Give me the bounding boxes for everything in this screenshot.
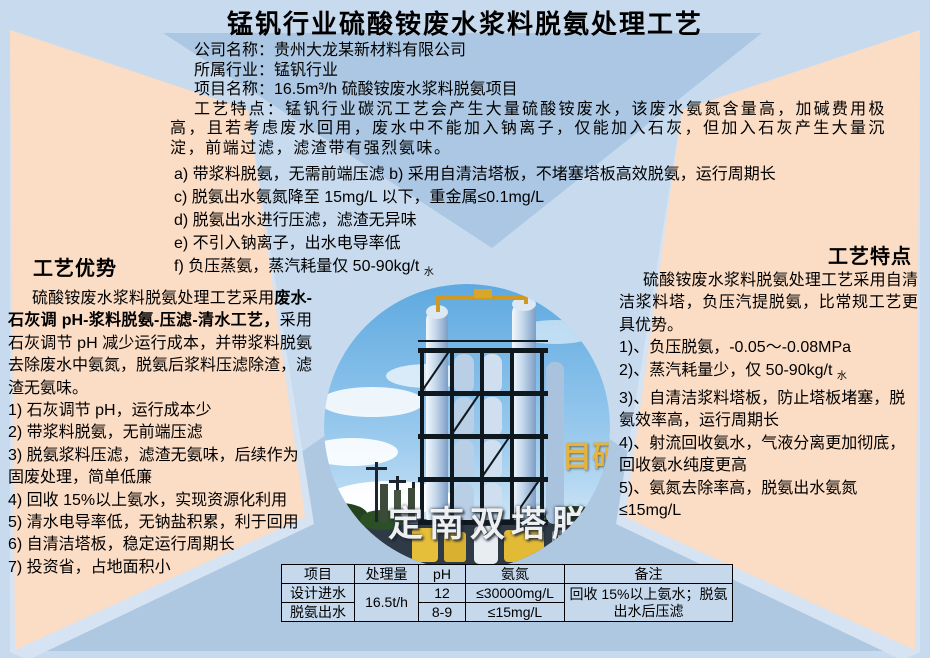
feature-line-e: e) 不引入钠离子，出水电导率低 xyxy=(174,232,886,255)
characteristic-item: 1)、负压脱氨，-0.05～-0.08MPa xyxy=(619,337,918,359)
photo-caption: 定南双塔脱氨 xyxy=(388,496,610,547)
company-name-line: 公司名称：贵州大龙某新材料有限公司 xyxy=(170,41,886,61)
cell-note: 回收 15%以上氨水；脱氨出水后压滤 xyxy=(565,584,733,622)
plant-photo: 定南双塔脱氨 目硕 xyxy=(324,284,610,570)
left-panel-heading: 工艺优势 xyxy=(33,252,117,281)
advantage-item: 6) 自清洁塔板，稳定运行周期长 xyxy=(8,534,312,556)
slide: 锰钒行业硫酸铵废水浆料脱氨处理工艺 公司名称：贵州大龙某新材料有限公司 所属行业… xyxy=(0,0,930,658)
project-info-block: 公司名称：贵州大龙某新材料有限公司 所属行业：锰钒行业 项目名称：16.5m³/… xyxy=(170,41,886,284)
cell-ph: 8-9 xyxy=(419,603,466,622)
right-panel-paragraph: 硫酸铵废水浆料脱氨处理工艺采用自清洁浆料塔，负压汽提脱氨，比常规工艺更具优势。 xyxy=(619,270,918,337)
feature-line-f-subscript: 水 xyxy=(424,267,434,278)
col-header-ph: pH xyxy=(419,565,466,584)
feature-line-f-text: f) 负压蒸氨，蒸汽耗量仅 50-90kg/t xyxy=(174,258,419,275)
spec-table: 项目 处理量 pH 氨氮 备注 设计进水 16.5t/h 12 ≤30000mg… xyxy=(281,564,733,622)
table-row: 设计进水 16.5t/h 12 ≤30000mg/L 回收 15%以上氨水；脱氨… xyxy=(282,584,733,603)
advantage-item: 4) 回收 15%以上氨水，实现资源化利用 xyxy=(8,490,312,512)
advantage-item: 7) 投资省，占地面积小 xyxy=(8,557,312,579)
advantage-item: 1) 石灰调节 pH，运行成本少 xyxy=(8,400,312,422)
left-para-pre: 硫酸铵废水浆料脱氨处理工艺采用 xyxy=(32,290,274,307)
characteristic-item: 4)、射流回收氨水，气液分离更加彻底，回收氨水纯度更高 xyxy=(619,433,918,478)
feature-list: a) 带浆料脱氨，无需前端压滤 b) 采用自清洁塔板，不堵塞塔板高效脱氨，运行周… xyxy=(170,163,886,284)
cell-ammonia: ≤30000mg/L xyxy=(466,584,565,603)
right-panel: 硫酸铵废水浆料脱氨处理工艺采用自清洁浆料塔，负压汽提脱氨，比常规工艺更具优势。 … xyxy=(619,270,918,522)
process-description: 工艺特点：锰钒行业碳沉工艺会产生大量硫酸铵废水，该废水氨氮含量高，加碱费用极高，… xyxy=(170,100,886,159)
col-header-note: 备注 xyxy=(565,565,733,584)
col-header-item: 项目 xyxy=(282,565,355,584)
advantage-item: 2) 带浆料脱氨，无前端压滤 xyxy=(8,422,312,444)
cell-ammonia: ≤15mg/L xyxy=(466,603,565,622)
right-panel-heading: 工艺特点 xyxy=(828,240,912,269)
slide-title: 锰钒行业硫酸铵废水浆料脱氨处理工艺 xyxy=(0,4,930,41)
industry-line: 所属行业：锰钒行业 xyxy=(170,61,886,81)
characteristic-item-2-text: 2)、蒸汽耗量少，仅 50-90kg/t xyxy=(619,362,832,379)
characteristic-item: 2)、蒸汽耗量少，仅 50-90kg/t 水 xyxy=(619,360,918,388)
left-panel-paragraph: 硫酸铵废水浆料脱氨处理工艺采用废水-石灰调 pH-浆料脱氨-压滤-清水工艺，采用… xyxy=(8,288,312,400)
feature-line-c: c) 脱氨出水氨氮降至 15mg/L 以下，重金属≤0.1mg/L xyxy=(174,186,886,209)
advantage-item: 3) 脱氨浆料压滤，滤渣无氨味，后续作为固废处理，简单低廉 xyxy=(8,445,312,490)
cell-item: 脱氨出水 xyxy=(282,603,355,622)
cell-capacity: 16.5t/h xyxy=(355,584,419,622)
col-header-capacity: 处理量 xyxy=(355,565,419,584)
cell-item: 设计进水 xyxy=(282,584,355,603)
characteristic-item-2-subscript: 水 xyxy=(837,371,847,382)
col-header-ammonia: 氨氮 xyxy=(466,565,565,584)
cell-ph: 12 xyxy=(419,584,466,603)
table-header-row: 项目 处理量 pH 氨氮 备注 xyxy=(282,565,733,584)
feature-line-d: d) 脱氨出水进行压滤，滤渣无异味 xyxy=(174,209,886,232)
characteristic-item: 3)、自清洁浆料塔板，防止塔板堵塞，脱氨效率高，运行周期长 xyxy=(619,388,918,433)
characteristic-item: 5)、氨氮去除率高，脱氨出水氨氮≤15mg/L xyxy=(619,478,918,523)
feature-line-ab: a) 带浆料脱氨，无需前端压滤 b) 采用自清洁塔板，不堵塞塔板高效脱氨，运行周… xyxy=(174,163,886,186)
left-panel: 硫酸铵废水浆料脱氨处理工艺采用废水-石灰调 pH-浆料脱氨-压滤-清水工艺，采用… xyxy=(8,288,312,579)
advantage-item: 5) 清水电导率低，无钠盐积累，利于回用 xyxy=(8,512,312,534)
project-name-line: 项目名称：16.5m³/h 硫酸铵废水浆料脱氨项目 xyxy=(170,80,886,100)
photo-watermark: 目硕 xyxy=(562,432,610,476)
